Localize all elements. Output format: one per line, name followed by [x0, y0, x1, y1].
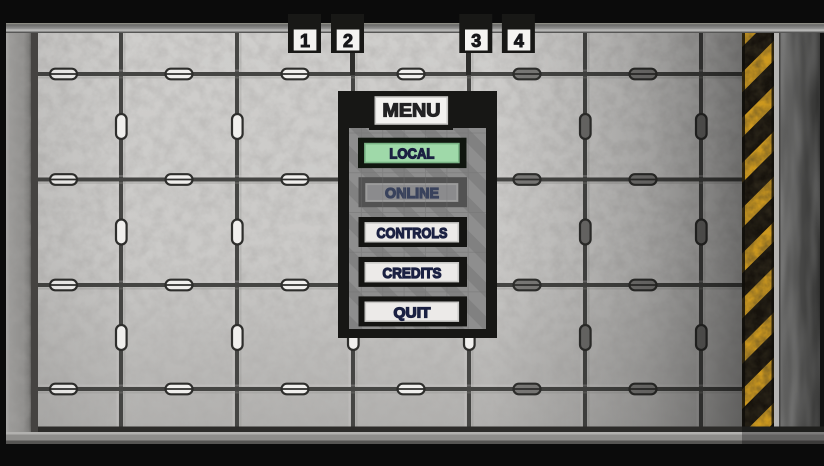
- svg-text:LOCAL: LOCAL: [389, 146, 434, 163]
- svg-text:ONLINE: ONLINE: [385, 185, 439, 202]
- svg-text:3: 3: [471, 31, 481, 51]
- svg-text:CONTROLS: CONTROLS: [377, 225, 448, 242]
- svg-text:2: 2: [343, 31, 353, 51]
- svg-text:QUIT: QUIT: [394, 304, 431, 321]
- svg-text:4: 4: [514, 31, 524, 51]
- svg-text:MENU: MENU: [383, 101, 441, 121]
- svg-text:1: 1: [300, 31, 310, 51]
- svg-text:CREDITS: CREDITS: [383, 265, 442, 282]
